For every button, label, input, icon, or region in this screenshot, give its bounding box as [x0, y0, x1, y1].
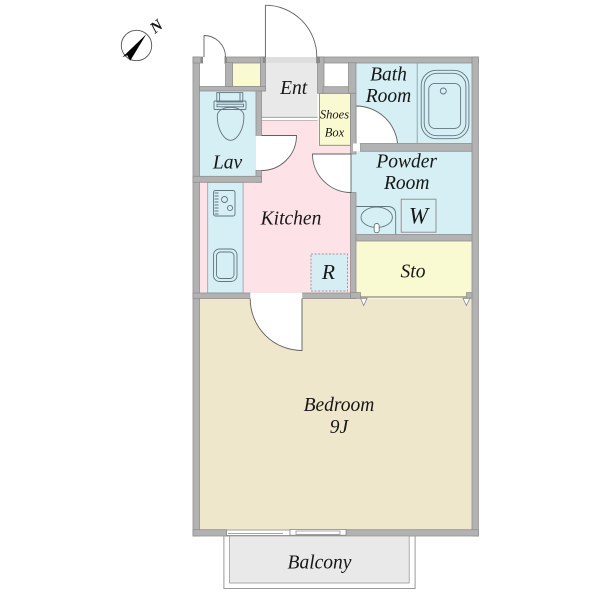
svg-text:Lav: Lav — [212, 153, 243, 174]
svg-text:Room: Room — [365, 86, 412, 107]
svg-text:Bedroom: Bedroom — [304, 395, 375, 416]
svg-text:9J: 9J — [330, 417, 350, 438]
svg-text:Room: Room — [383, 173, 430, 194]
svg-text:Bath: Bath — [370, 65, 407, 86]
svg-text:Balcony: Balcony — [288, 553, 352, 574]
svg-text:Box: Box — [325, 125, 345, 139]
svg-text:R: R — [321, 260, 335, 284]
svg-text:Ent: Ent — [279, 78, 308, 99]
svg-text:Powder: Powder — [375, 152, 437, 173]
svg-text:Kitchen: Kitchen — [260, 209, 322, 230]
svg-text:W: W — [409, 204, 430, 229]
svg-text:Sto: Sto — [401, 262, 426, 283]
svg-text:Shoes: Shoes — [320, 108, 349, 122]
